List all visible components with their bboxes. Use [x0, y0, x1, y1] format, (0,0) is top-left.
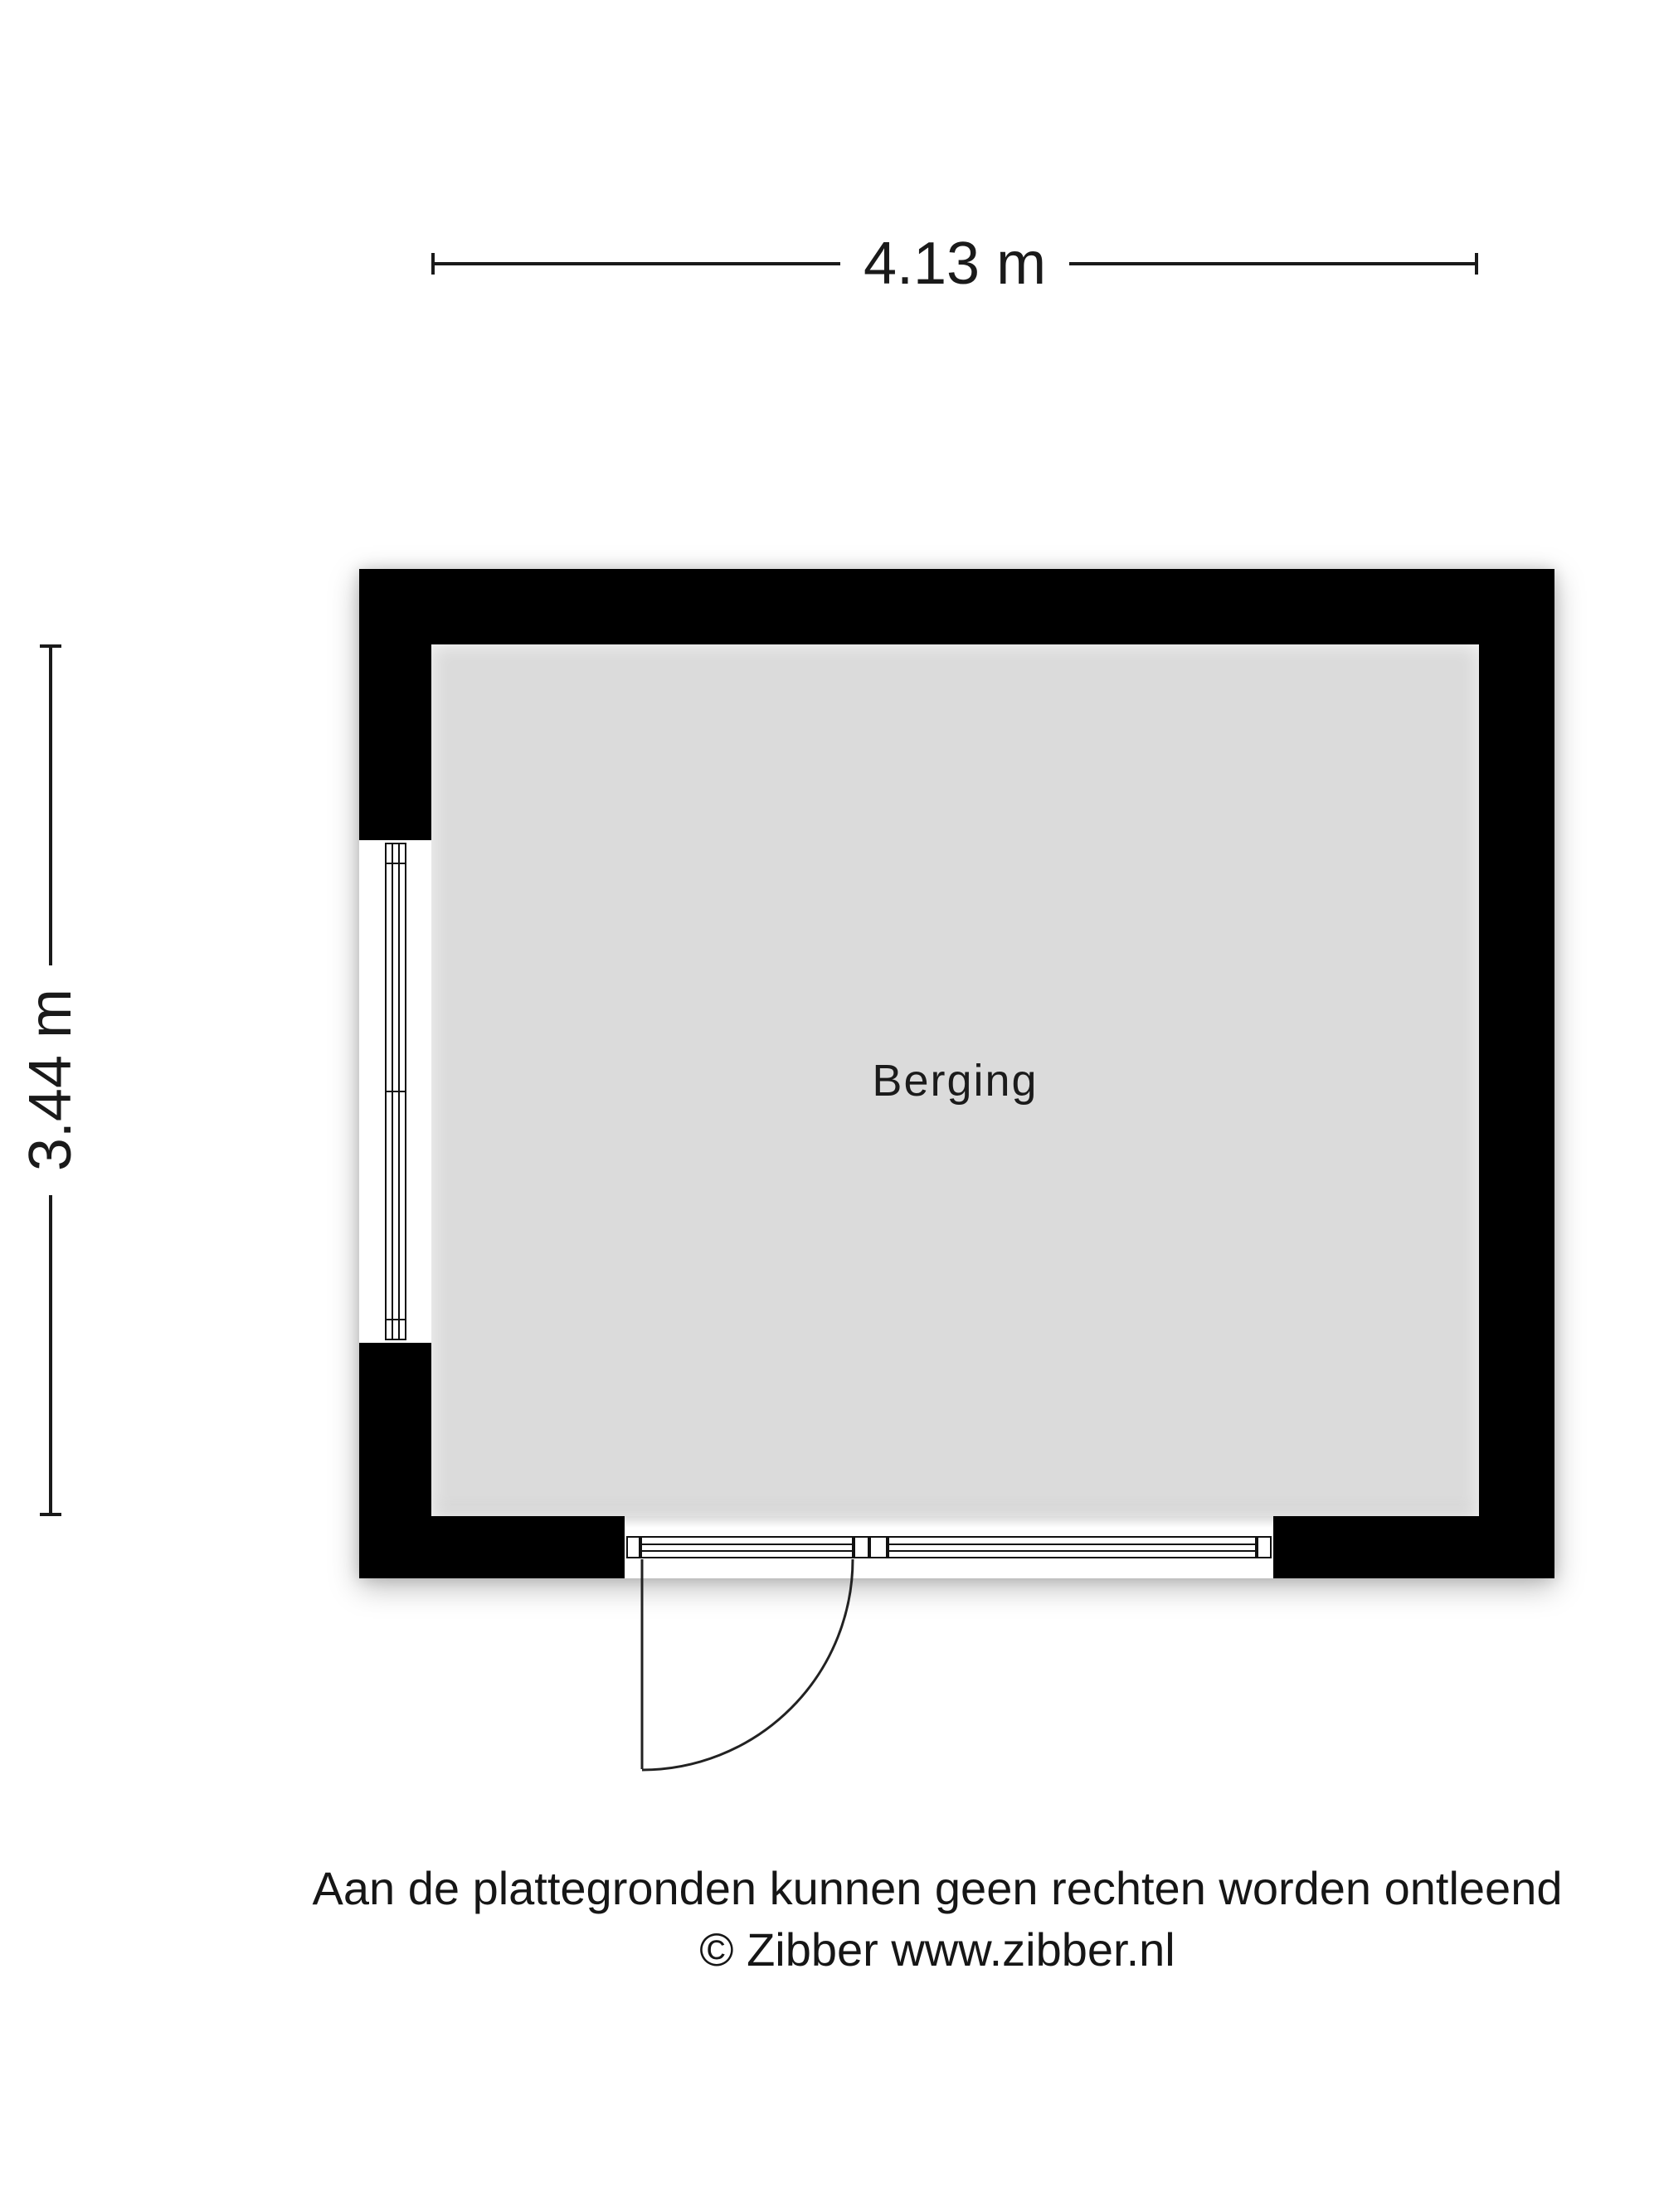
door-jamb-middle-1 — [854, 1536, 869, 1558]
door-panel — [640, 1536, 854, 1558]
door-swing-arc — [642, 1559, 853, 1770]
window-frame-bar — [387, 1319, 405, 1320]
floorplan-page: 4.13 m 3.44 m Berging — [0, 0, 1659, 2212]
room-label: Berging — [872, 1055, 1038, 1106]
window-panel — [888, 1536, 1257, 1558]
height-dimension-label: 3.44 m — [21, 965, 80, 1194]
window-frame-bar — [387, 863, 405, 864]
width-dimension: 4.13 m — [431, 232, 1478, 295]
dimension-tick-bottom — [40, 1513, 61, 1516]
door-jamb-left — [626, 1536, 640, 1558]
height-dimension: 3.44 m — [19, 644, 82, 1516]
door-frame-line — [642, 1550, 852, 1552]
window-glazing-line — [889, 1544, 1255, 1545]
dimension-line-segment — [1069, 262, 1475, 265]
dimension-line-segment — [49, 1195, 52, 1513]
left-window-opening — [359, 840, 431, 1343]
dimension-line-segment — [49, 648, 52, 965]
copyright-text: © Zibber www.zibber.nl — [313, 1919, 1563, 1981]
disclaimer-text: Aan de plattegronden kunnen geen rechten… — [313, 1858, 1563, 1919]
room-berging: Berging — [431, 644, 1479, 1516]
window-jamb-right — [1257, 1536, 1272, 1558]
door-window-strip — [626, 1536, 1272, 1558]
floor-plan: Berging — [359, 569, 1554, 1578]
dimension-line-segment — [435, 262, 840, 265]
window-glazing-line — [889, 1550, 1255, 1552]
door-jamb-middle-2 — [869, 1536, 888, 1558]
width-dimension-label: 4.13 m — [840, 234, 1069, 294]
door-frame-line — [642, 1544, 852, 1545]
footer: Aan de plattegronden kunnen geen rechten… — [313, 1858, 1563, 1981]
left-window-frame — [385, 843, 406, 1340]
window-frame-bar — [387, 1091, 405, 1092]
dimension-tick-right — [1475, 253, 1478, 275]
